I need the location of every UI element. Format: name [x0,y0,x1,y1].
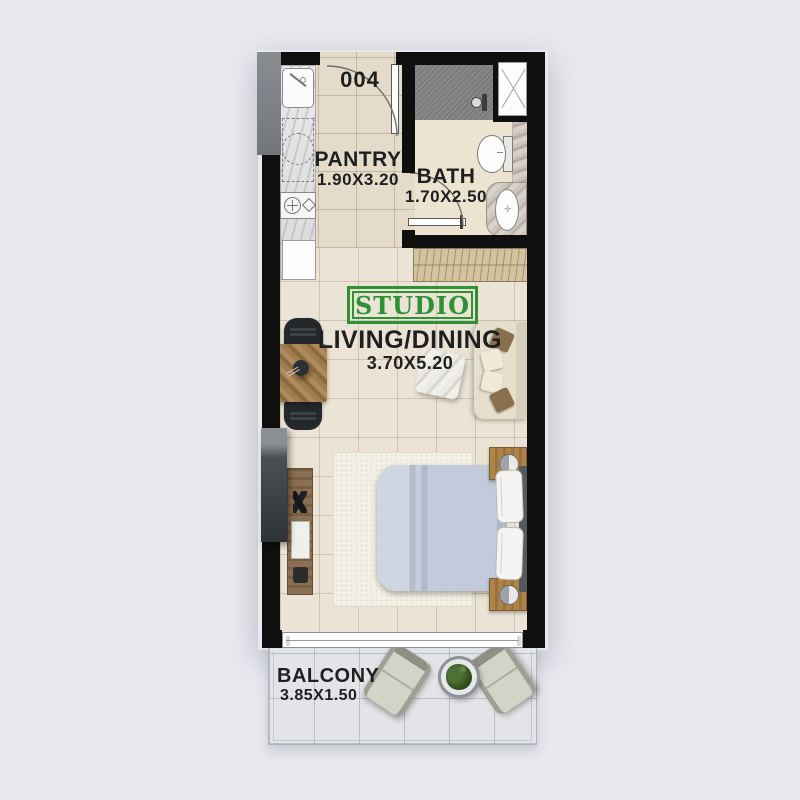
sink-basin [495,189,519,231]
tray [291,521,310,559]
wall [402,235,545,248]
vase-icon [293,360,309,376]
plant-icon [446,664,472,690]
wall [262,630,282,648]
balcony-dimensions: 3.85X1.50 [280,688,370,705]
wall [523,630,545,648]
bed [377,465,503,591]
sliding-window [282,632,523,648]
shower-head-icon [471,97,482,108]
balcony-label: BALCONY [277,666,377,687]
pantry-dimensions: 1.90X3.20 [300,171,416,189]
bath-label: BATH [402,166,490,188]
wardrobe [413,248,528,282]
structural-column [257,52,281,155]
pillow [495,470,524,524]
bath-dimensions: 1.70X2.50 [398,188,494,206]
media-box [293,567,308,583]
balcony-table [438,656,480,698]
entry-door [391,64,399,134]
floor-plan: 004 PANTRY 1.90X3.20 BATH 1.70X2.50 STUD… [0,0,800,800]
pantry-label: PANTRY [303,149,413,171]
duct-shaft-icon [498,62,527,116]
burner-icon [284,197,301,214]
shower [415,65,493,120]
kitchen-cabinet [282,240,316,280]
dining-chair [284,400,322,430]
studio-badge-label: STUDIO [352,291,473,319]
wall [527,52,545,648]
bath-door [408,218,466,226]
stove [280,192,316,219]
books-icon [293,491,307,513]
tv-console [287,468,313,595]
lamp-icon [499,585,519,605]
kitchen-sink [282,68,314,108]
unit-number: 004 [328,68,392,91]
pillow [495,527,524,581]
studio-badge: STUDIO [347,286,478,324]
tv [261,428,287,542]
living-dimensions: 3.70X5.20 [355,354,465,373]
burner-icon [302,198,316,212]
living-label: LIVING/DINING [310,327,510,353]
